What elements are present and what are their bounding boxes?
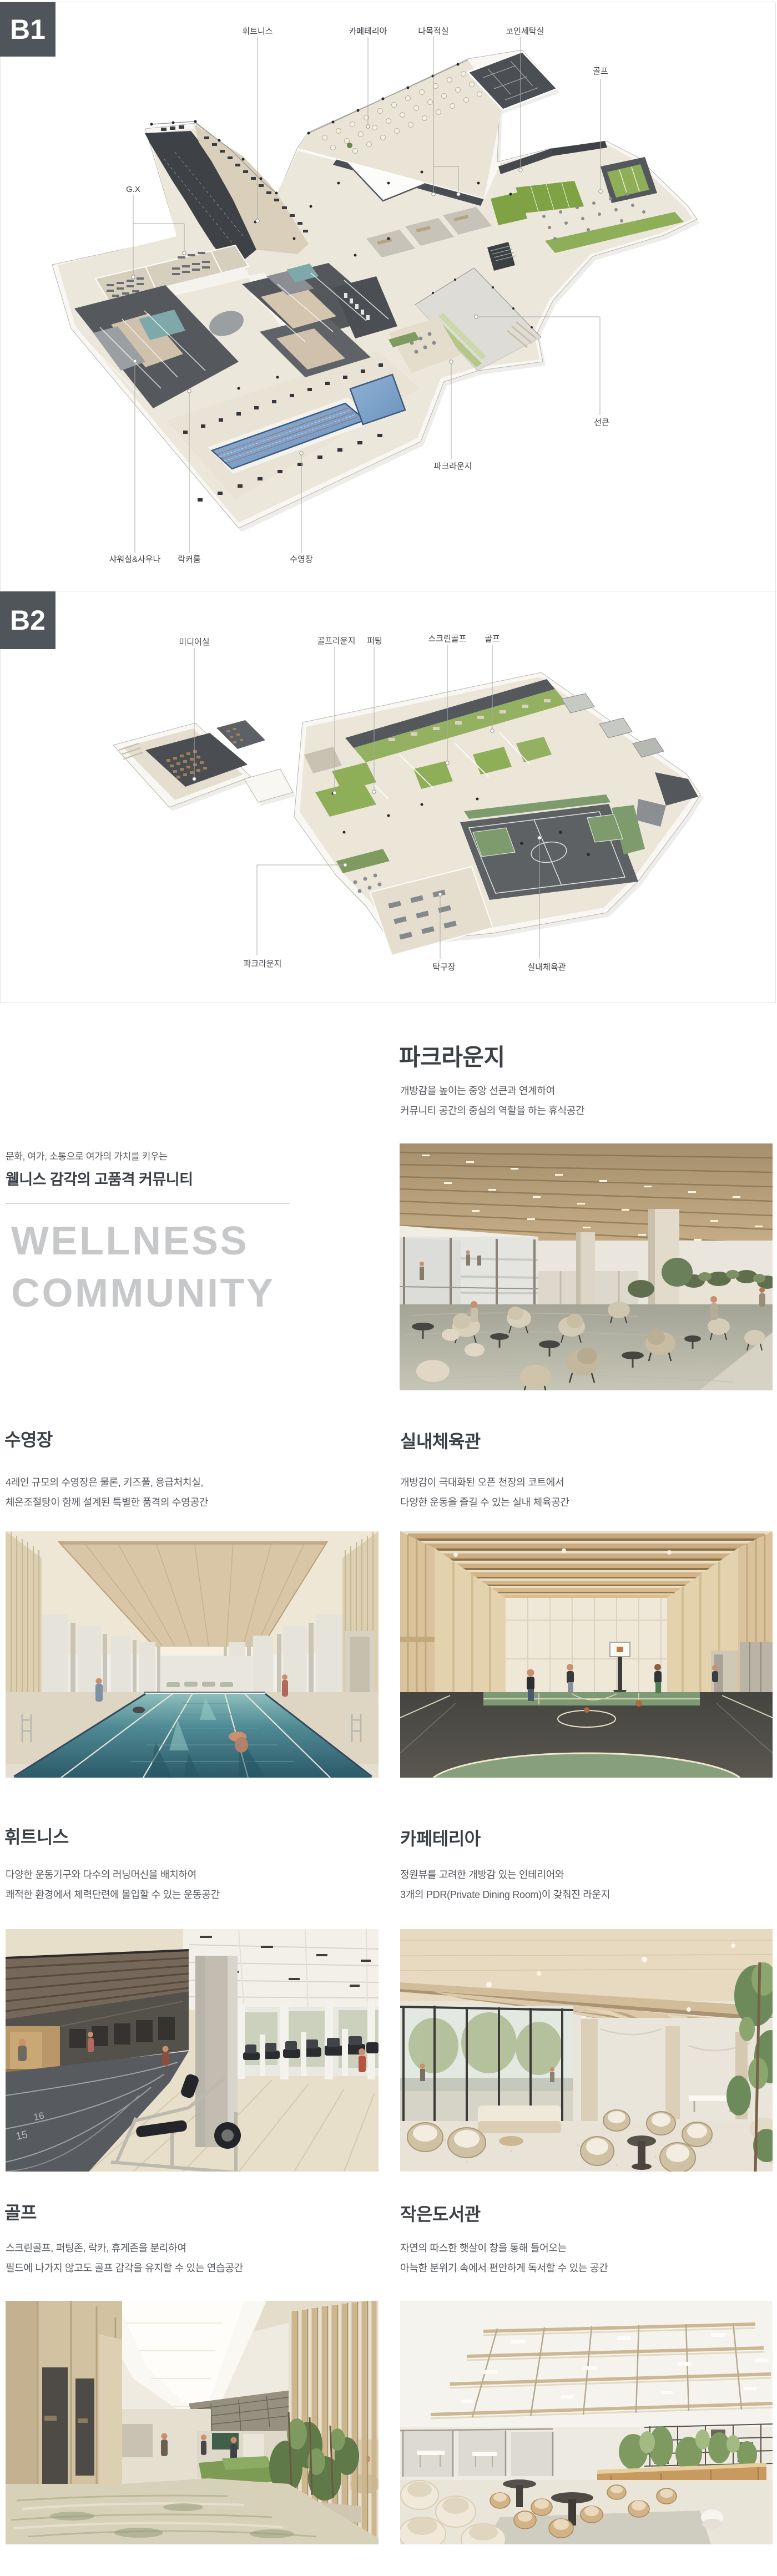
svg-text:탁구장: 탁구장 bbox=[432, 963, 456, 972]
svg-text:G.X: G.X bbox=[126, 185, 140, 194]
svg-text:파크라운지: 파크라운지 bbox=[243, 959, 281, 969]
svg-text:파크라운지: 파크라운지 bbox=[433, 462, 472, 471]
svg-text:스크린골프: 스크린골프 bbox=[428, 634, 466, 644]
svg-text:샤워실&사우나: 샤워실&사우나 bbox=[109, 555, 161, 564]
svg-text:다목적실: 다목적실 bbox=[418, 27, 448, 36]
svg-text:카페테리아: 카페테리아 bbox=[349, 27, 387, 36]
svg-text:락커룸: 락커룸 bbox=[178, 555, 201, 564]
svg-text:골프라운지: 골프라운지 bbox=[317, 636, 355, 646]
svg-text:휘트니스: 휘트니스 bbox=[242, 27, 273, 36]
svg-text:실내체육관: 실내체육관 bbox=[527, 963, 566, 972]
svg-text:골프: 골프 bbox=[485, 634, 500, 644]
svg-text:16: 16 bbox=[33, 2110, 45, 2123]
svg-text:골프: 골프 bbox=[593, 67, 608, 76]
svg-text:수영장: 수영장 bbox=[290, 555, 313, 564]
svg-text:15: 15 bbox=[15, 2129, 29, 2143]
svg-text:미디어실: 미디어실 bbox=[179, 637, 209, 647]
svg-text:선큰: 선큰 bbox=[594, 418, 609, 427]
svg-text:퍼팅: 퍼팅 bbox=[367, 636, 382, 646]
svg-text:코인세탁실: 코인세탁실 bbox=[506, 27, 544, 36]
